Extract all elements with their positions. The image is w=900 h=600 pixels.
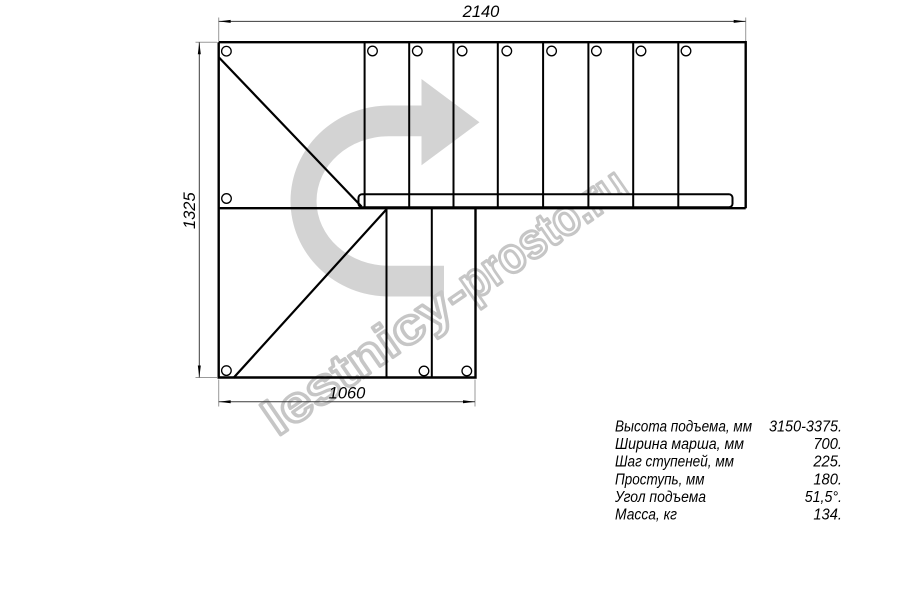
svg-text:Угол подъема: Угол подъема: [614, 489, 706, 506]
svg-text:Масса, кг: Масса, кг: [615, 507, 677, 524]
svg-text:134.: 134.: [813, 507, 842, 524]
svg-text:1060: 1060: [329, 384, 367, 402]
svg-text:51,5°.: 51,5°.: [805, 489, 842, 506]
svg-text:180.: 180.: [813, 471, 842, 488]
svg-text:700.: 700.: [813, 436, 842, 453]
svg-text:225.: 225.: [812, 454, 842, 471]
svg-text:Высота подъема, мм: Высота подъема, мм: [615, 418, 752, 435]
svg-text:2140: 2140: [462, 3, 501, 21]
svg-text:3150-3375.: 3150-3375.: [769, 418, 842, 435]
svg-text:Проступь, мм: Проступь, мм: [615, 471, 705, 488]
svg-text:1325: 1325: [181, 192, 199, 230]
svg-text:Ширина марша, мм: Ширина марша, мм: [615, 436, 744, 453]
svg-text:Шаг ступеней, мм: Шаг ступеней, мм: [615, 454, 734, 471]
